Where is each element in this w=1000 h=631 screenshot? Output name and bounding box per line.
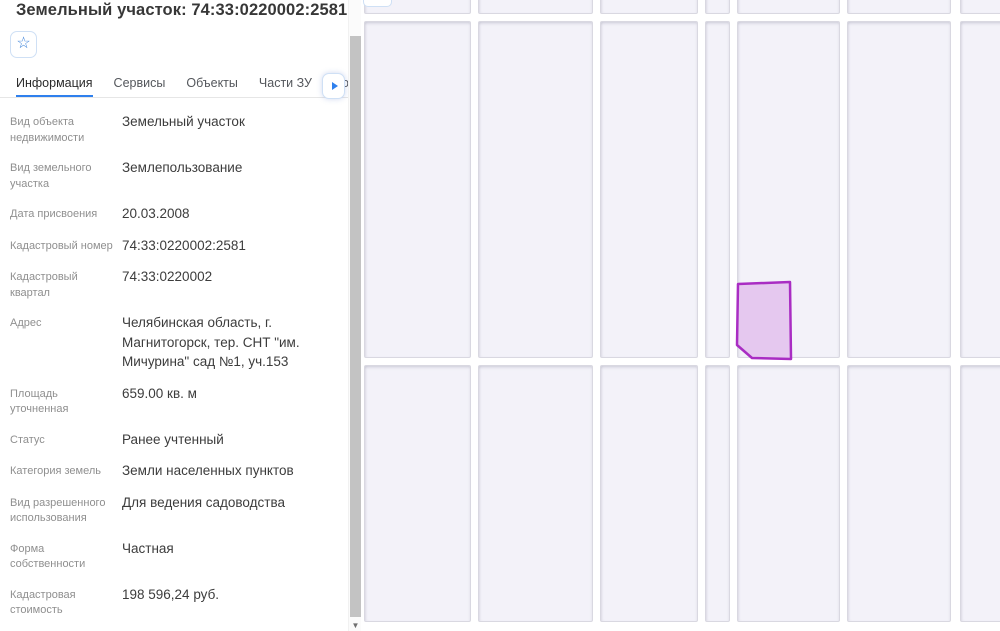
tab-3[interactable]: Объекты <box>186 70 238 97</box>
field-label: Вид объекта недвижимости <box>10 112 122 146</box>
field-value: Для ведения садоводства <box>122 493 336 527</box>
field-label: Кадастровый номер <box>10 236 122 256</box>
field-label: Форма собственности <box>10 539 122 573</box>
field-label: Дата присвоения <box>10 204 122 224</box>
favorite-button[interactable]: ☆ <box>10 31 37 58</box>
field-value: Землепользование <box>122 158 336 192</box>
field-row: Кадастровая стоимость198 596,24 руб. <box>10 585 336 619</box>
field-label: Кадастровая стоимость <box>10 585 122 619</box>
tab-2[interactable]: Сервисы <box>114 70 166 97</box>
field-label: Вид разрешенного использования <box>10 493 122 527</box>
field-label: Вид земельного участка <box>10 158 122 192</box>
triangle-down-icon: ▼ <box>352 622 360 630</box>
field-label: Площадь уточненная <box>10 384 122 418</box>
field-value: 74:33:0220002:2581 <box>122 236 336 256</box>
field-row: Кадастровый номер74:33:0220002:2581 <box>10 236 336 256</box>
field-label: Кадастровый квартал <box>10 267 122 301</box>
selected-parcel-outline[interactable] <box>737 282 791 359</box>
field-value: Ранее учтенный <box>122 430 336 450</box>
tab-bar: ИнформацияСервисыОбъектыЧасти ЗУСостав Е… <box>0 70 348 98</box>
map-control-button[interactable] <box>363 0 392 7</box>
field-value: 20.03.2008 <box>122 204 336 224</box>
field-row: Форма собственностиЧастная <box>10 539 336 573</box>
more-tabs-button[interactable] <box>322 73 345 99</box>
field-row: Дата присвоения20.03.2008 <box>10 204 336 224</box>
field-label: Адрес <box>10 313 122 372</box>
star-icon: ☆ <box>16 36 30 52</box>
scrollbar-down-button[interactable]: ▼ <box>349 620 362 631</box>
field-row: Вид объекта недвижимостиЗемельный участо… <box>10 112 336 146</box>
tab-4[interactable]: Части ЗУ <box>259 70 312 97</box>
field-value: 659.00 кв. м <box>122 384 336 418</box>
field-list: Вид объекта недвижимостиЗемельный участо… <box>10 112 336 631</box>
field-value: Частная <box>122 539 336 573</box>
field-value: Земли населенных пунктов <box>122 461 336 481</box>
field-row: Вид разрешенного использованияДля ведени… <box>10 493 336 527</box>
field-row: СтатусРанее учтенный <box>10 430 336 450</box>
highlighted-parcel-layer <box>361 0 1000 631</box>
chevron-right-icon <box>332 82 338 90</box>
field-label: Категория земель <box>10 461 122 481</box>
field-value: 74:33:0220002 <box>122 267 336 301</box>
field-row: АдресЧелябинская область, г. Магнитогорс… <box>10 313 336 372</box>
scrollbar-thumb[interactable] <box>350 36 361 617</box>
tab-1[interactable]: Информация <box>16 70 93 97</box>
field-label: Статус <box>10 430 122 450</box>
cadastral-map[interactable] <box>361 0 1000 631</box>
field-row: Площадь уточненная659.00 кв. м <box>10 384 336 418</box>
field-row: Категория земельЗемли населенных пунктов <box>10 461 336 481</box>
app-window: Земельный участок: 74:33:0220002:2581 ☆ … <box>0 0 1000 631</box>
panel-scrollbar[interactable]: ▼ <box>348 0 361 631</box>
field-value: 198 596,24 руб. <box>122 585 336 619</box>
parcel-info-panel: Земельный участок: 74:33:0220002:2581 ☆ … <box>0 0 348 631</box>
field-row: Вид земельного участкаЗемлепользование <box>10 158 336 192</box>
page-title: Земельный участок: 74:33:0220002:2581 <box>16 1 347 20</box>
field-row: Кадастровый квартал74:33:0220002 <box>10 267 336 301</box>
field-value: Земельный участок <box>122 112 336 146</box>
field-value: Челябинская область, г. Магнитогорск, те… <box>122 313 336 372</box>
